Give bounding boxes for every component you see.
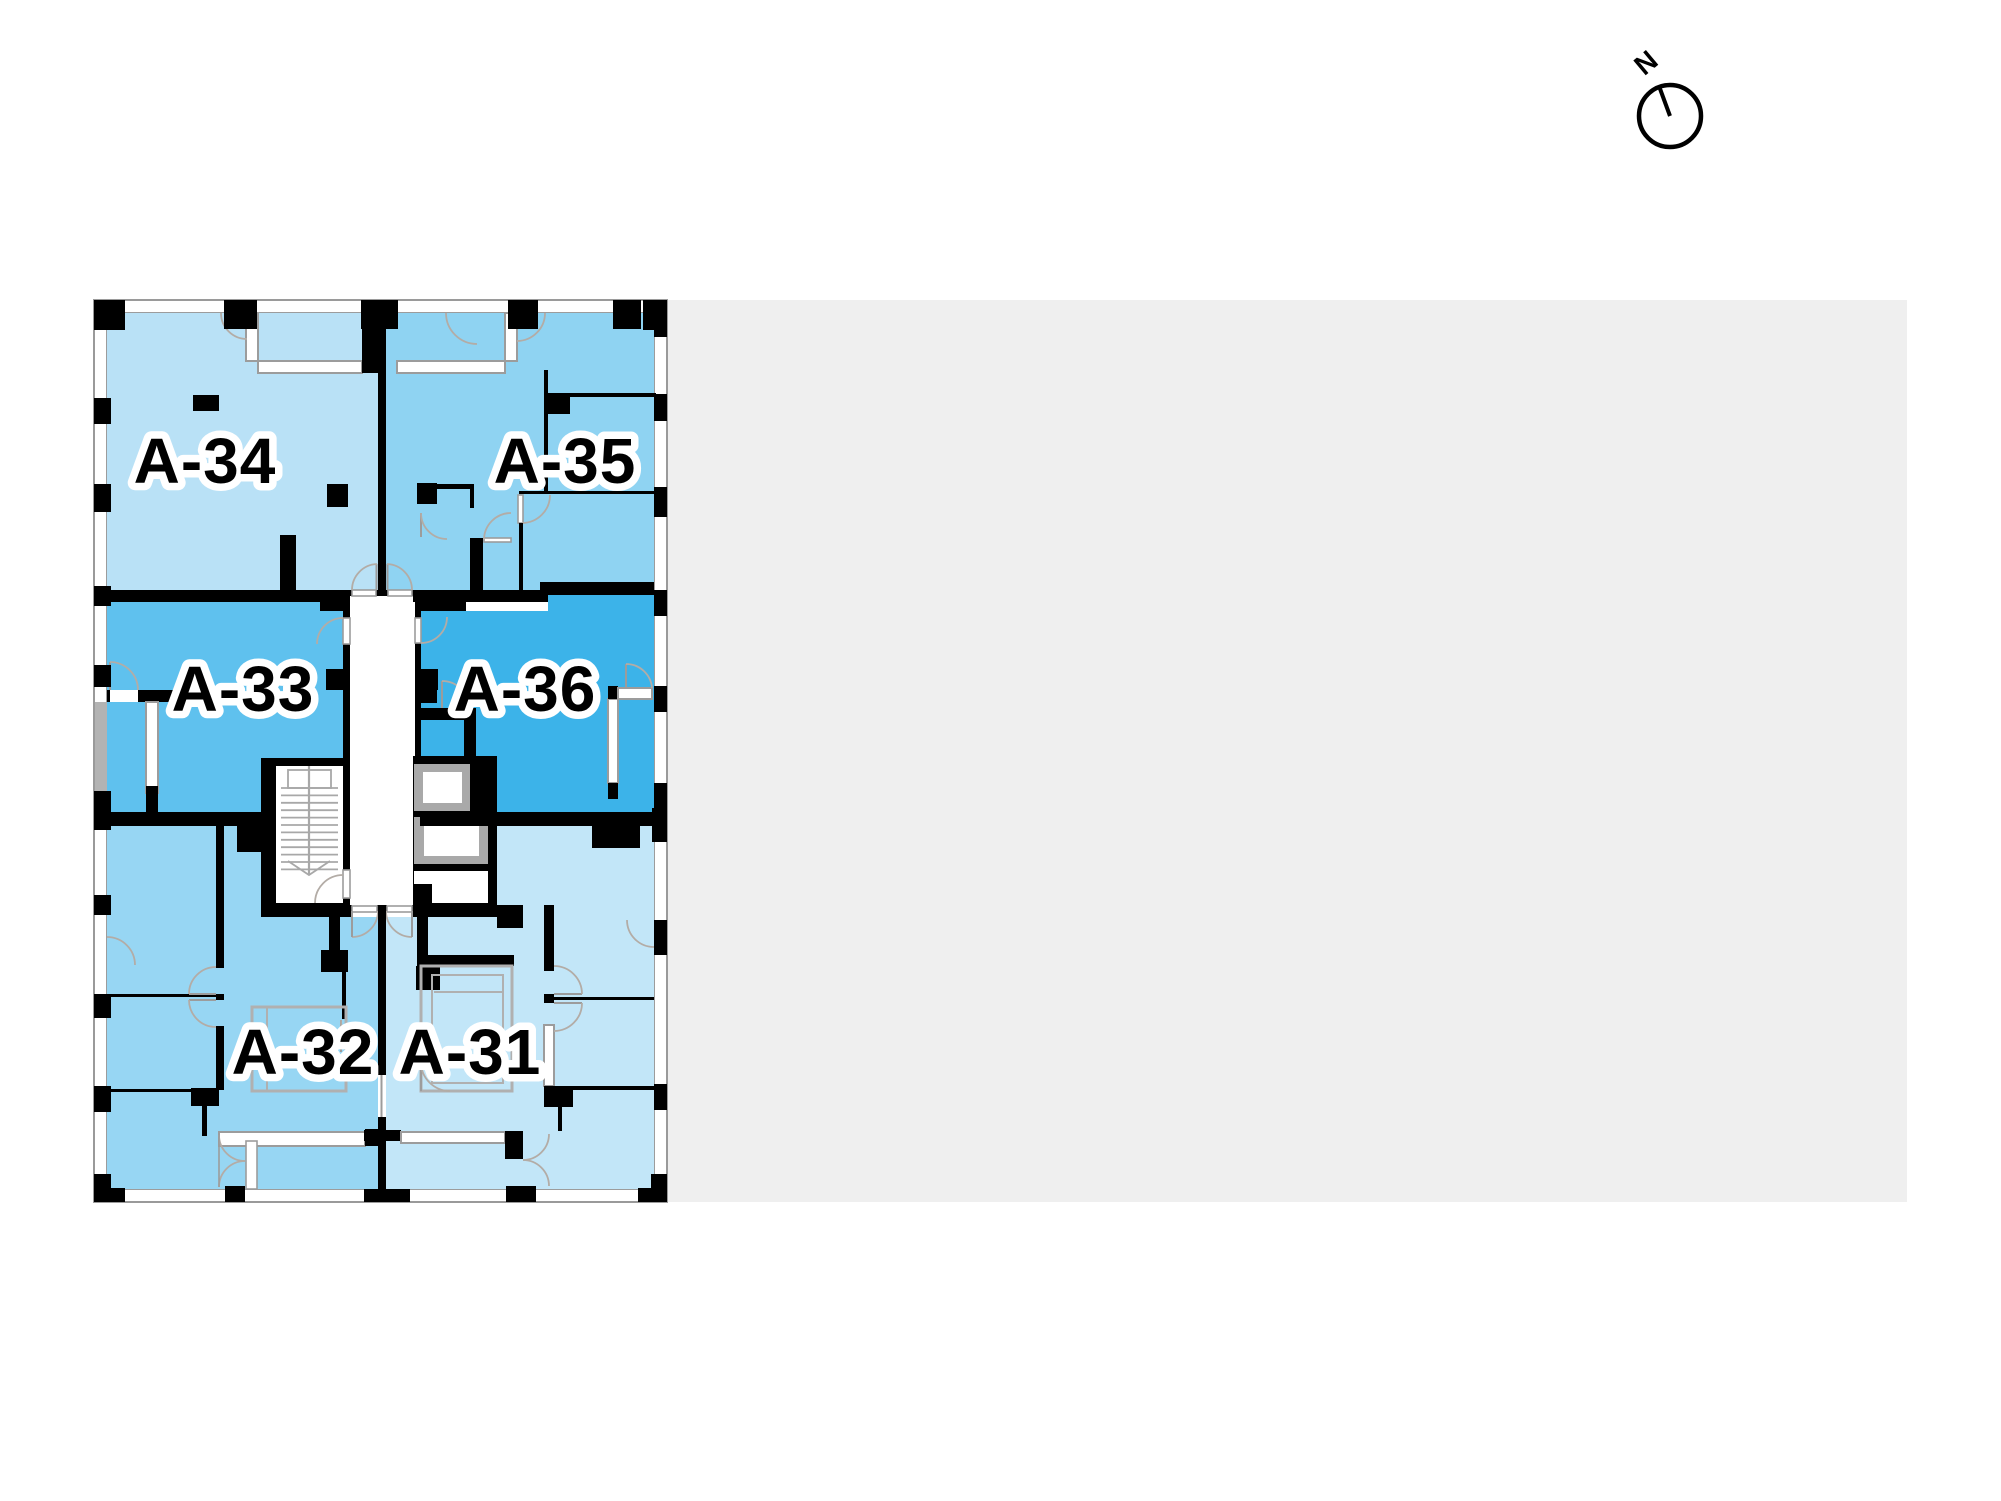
svg-text:A-31: A-31 [399, 1016, 542, 1088]
svg-text:A-34: A-34 [134, 425, 277, 497]
svg-text:A-36: A-36 [454, 653, 597, 725]
svg-text:A-35: A-35 [494, 425, 637, 497]
svg-text:A-33: A-33 [172, 653, 315, 725]
svg-text:A-32: A-32 [232, 1016, 375, 1088]
